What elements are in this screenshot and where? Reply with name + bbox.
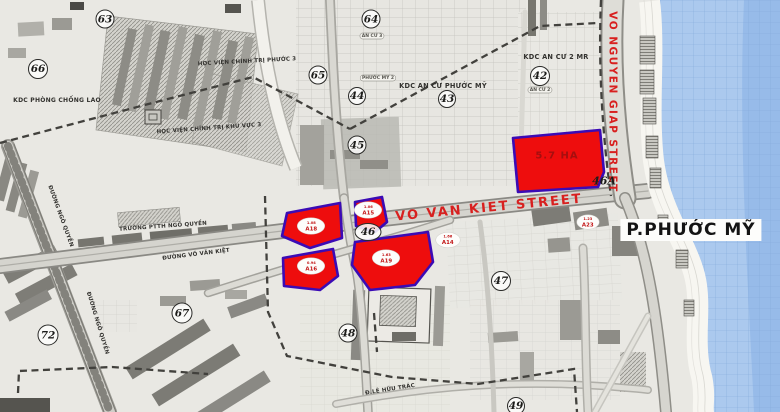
lot-code-text: A15 bbox=[362, 210, 374, 215]
lot-oval-a16: 0.94 A16 bbox=[298, 258, 325, 274]
zone-marker-65: 65 bbox=[309, 66, 328, 85]
lot-code-text: A19 bbox=[380, 258, 392, 263]
label-kdc-an-cu-phuoc-my: KDC AN CƯ PHƯỚC MỸ bbox=[399, 83, 487, 90]
lot-area-text: 1.08 bbox=[307, 221, 316, 225]
zone-marker-43: 43 bbox=[438, 90, 456, 108]
zone-marker-72: 72 bbox=[38, 325, 59, 346]
lot-area-text: 1.63 bbox=[382, 253, 391, 257]
lot-area-text: 0.94 bbox=[307, 261, 316, 265]
zone-marker-44: 44 bbox=[348, 87, 366, 105]
label-vo-nguyen-giap-street: VO NGUYEN GIAP STREET bbox=[607, 11, 618, 193]
lot-code-text: A16 bbox=[305, 266, 317, 271]
lot-area-text: 1.23 bbox=[584, 217, 593, 221]
zone-marker-63: 63 bbox=[96, 10, 115, 29]
base-map-svg bbox=[0, 0, 780, 412]
lot-oval-a23: 1.23 A23 bbox=[577, 215, 599, 229]
badge-phuoc-my-2: PHƯỚC MỸ 2 bbox=[360, 75, 396, 82]
lot-oval-a19: 1.63 A19 bbox=[373, 250, 400, 266]
zone-marker-66: 66 bbox=[28, 59, 48, 79]
zone-marker-46a: 46A bbox=[592, 175, 616, 188]
zone-marker-46: 46 bbox=[355, 223, 382, 241]
label-kdc-phong-chong-lao: KDC PHÒNG CHỐNG LAO bbox=[13, 97, 101, 103]
zone-marker-49: 49 bbox=[507, 397, 525, 412]
planning-map: KDC PHÒNG CHỐNG LAO HỌC VIỆN CHÍNH TRỊ P… bbox=[0, 0, 780, 412]
zone-marker-47: 47 bbox=[491, 271, 511, 291]
zone-marker-48: 48 bbox=[339, 324, 358, 343]
badge-an-cu-3: AN CƯ 3 bbox=[360, 33, 385, 40]
parcel-area-label: 5.7 HA bbox=[535, 151, 578, 162]
zone-marker-64: 64 bbox=[362, 10, 381, 29]
lot-area-text: 1.66 bbox=[444, 235, 453, 239]
lot-code-text: A23 bbox=[582, 222, 594, 227]
lot-oval-a15: 1.06 A15 bbox=[355, 202, 382, 218]
district-label: P.PHƯỚC MỸ bbox=[620, 219, 761, 241]
lot-oval-a14: 1.66 A14 bbox=[436, 233, 460, 248]
label-kdc-an-cu-2-mr: KDC AN CƯ 2 MR bbox=[523, 54, 588, 61]
zone-marker-42: 42 bbox=[530, 66, 550, 86]
lot-area-text: 1.06 bbox=[364, 205, 373, 209]
zone-marker-67: 67 bbox=[172, 303, 193, 324]
badge-an-cu-2: AN CƯ 2 bbox=[528, 87, 553, 94]
zone-marker-45: 45 bbox=[348, 136, 367, 155]
lot-code-text: A14 bbox=[442, 240, 454, 245]
lot-oval-a18: 1.08 A18 bbox=[298, 218, 325, 234]
lot-code-text: A18 bbox=[305, 226, 317, 231]
